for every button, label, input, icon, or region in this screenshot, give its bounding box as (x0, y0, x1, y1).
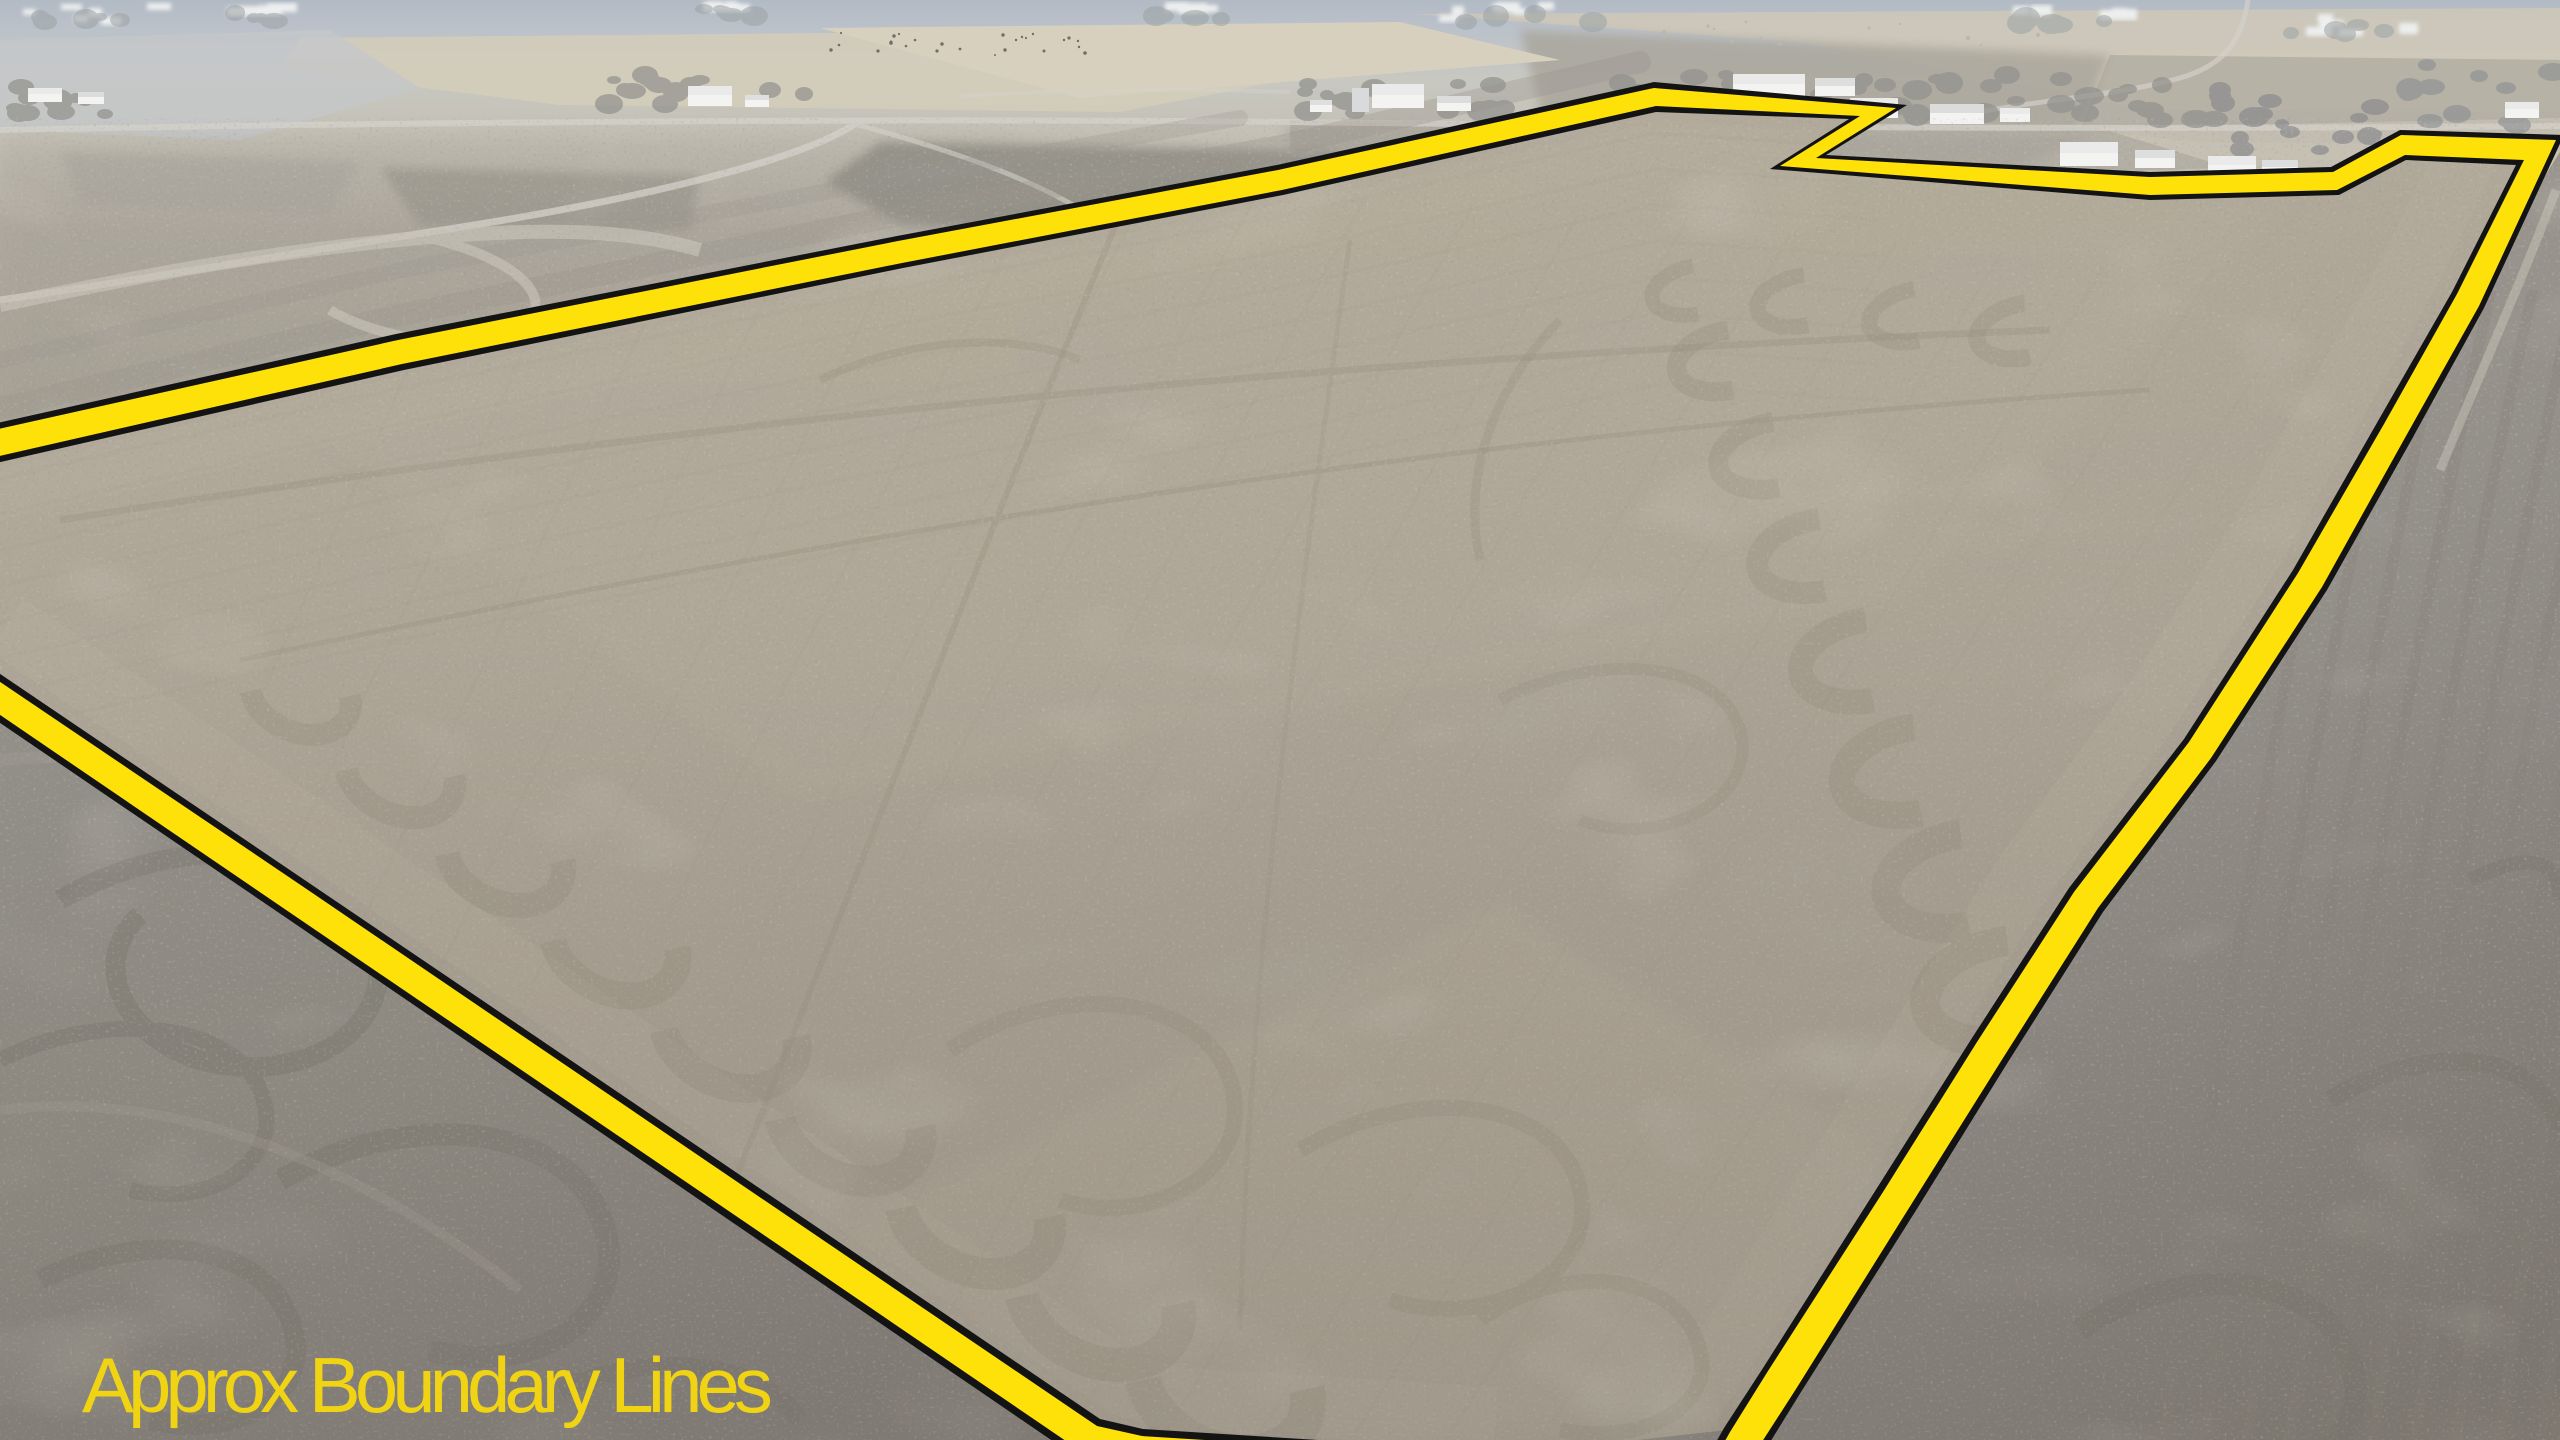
svg-text:Approx Boundary Lines: Approx Boundary Lines (82, 1341, 771, 1429)
